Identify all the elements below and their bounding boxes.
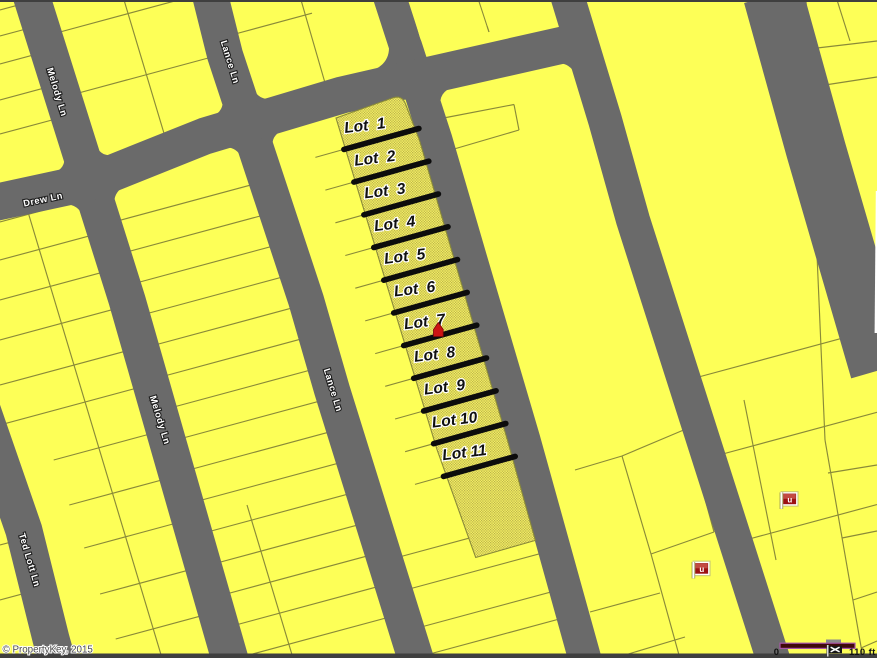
svg-text:0: 0 xyxy=(774,647,779,658)
svg-text:u: u xyxy=(787,496,792,505)
svg-text:u: u xyxy=(699,565,704,574)
svg-text:© PropertyKey, 2015: © PropertyKey, 2015 xyxy=(3,645,94,656)
svg-text:110 ft: 110 ft xyxy=(849,647,876,658)
